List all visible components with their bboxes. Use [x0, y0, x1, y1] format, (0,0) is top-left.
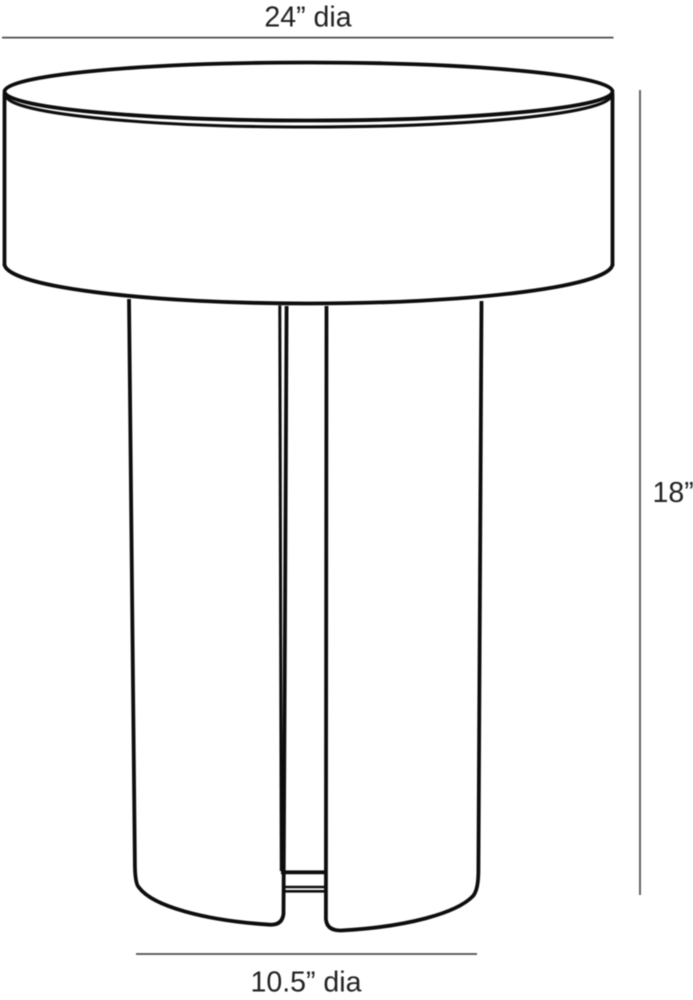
svg-text:24” dia: 24” dia [264, 2, 351, 34]
svg-text:18”: 18” [653, 477, 693, 509]
svg-text:10.5” dia: 10.5” dia [251, 967, 362, 999]
